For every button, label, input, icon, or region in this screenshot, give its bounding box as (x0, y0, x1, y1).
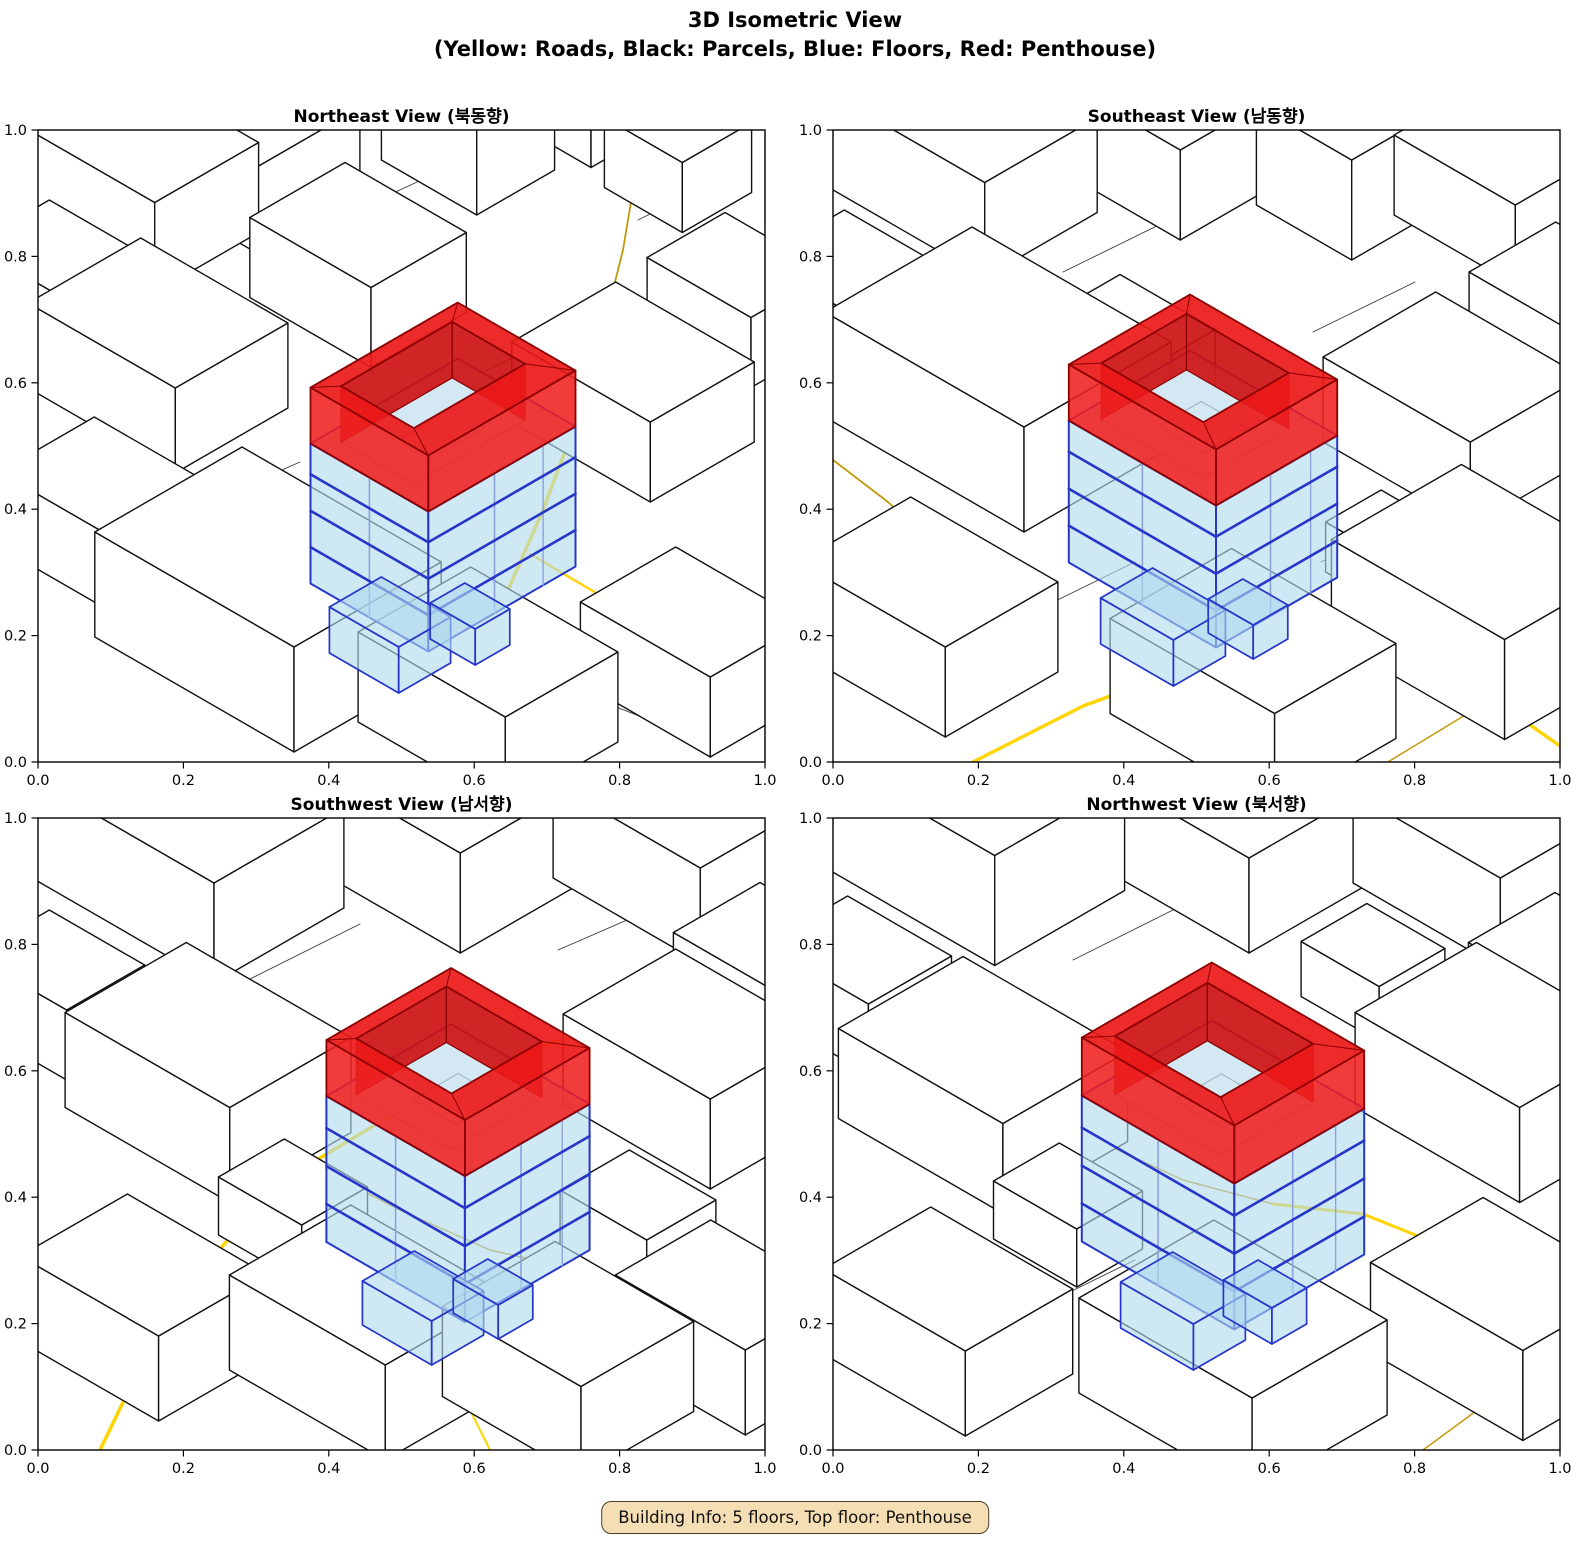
y-tick-label: 0.4 (799, 502, 822, 518)
y-tick-label: 0.6 (799, 376, 822, 392)
northwest-scene-canvas: 0.00.20.40.60.81.00.00.20.40.60.81.0 (833, 818, 1560, 1450)
x-tick-label: 0.4 (317, 773, 340, 789)
northeast-scene-canvas: 0.00.20.40.60.81.00.00.20.40.60.81.0 (38, 130, 765, 762)
y-tick-label: 0.2 (4, 629, 27, 645)
subplot-southeast: Southeast View (남동향) 0.00.20.40.60.81.00… (833, 130, 1560, 762)
y-tick-label: 0.2 (799, 1317, 822, 1333)
x-tick-label: 0.0 (821, 773, 844, 789)
x-tick-label: 1.0 (753, 773, 776, 789)
x-tick-label: 0.2 (172, 1461, 195, 1477)
x-tick-label: 0.2 (172, 773, 195, 789)
y-tick-label: 1.0 (4, 811, 27, 827)
x-tick-label: 0.8 (1403, 1461, 1426, 1477)
x-tick-label: 0.4 (1112, 773, 1135, 789)
y-tick-label: 1.0 (799, 811, 822, 827)
y-tick-label: 0.2 (4, 1317, 27, 1333)
y-tick-label: 0.4 (4, 502, 27, 518)
x-tick-label: 0.4 (1112, 1461, 1135, 1477)
subplot-northeast: Northeast View (북동향) 0.00.20.40.60.81.00… (38, 130, 765, 762)
y-tick-label: 0.4 (4, 1190, 27, 1206)
figure-title: 3D Isometric View (Yellow: Roads, Black:… (0, 6, 1590, 64)
figure-title-line2: (Yellow: Roads, Black: Parcels, Blue: Fl… (0, 35, 1590, 64)
y-tick-label: 0.0 (799, 755, 822, 771)
x-tick-label: 0.2 (967, 1461, 990, 1477)
building-info-badge: Building Info: 5 floors, Top floor: Pent… (601, 1501, 989, 1534)
y-tick-label: 1.0 (4, 123, 27, 139)
x-tick-label: 0.2 (967, 773, 990, 789)
x-tick-label: 1.0 (753, 1461, 776, 1477)
x-tick-label: 1.0 (1548, 773, 1571, 789)
y-tick-label: 0.0 (4, 1443, 27, 1459)
subplot-title-northwest: Northwest View (북서향) (793, 790, 1590, 815)
figure-title-line1: 3D Isometric View (0, 6, 1590, 35)
subplot-title-southeast: Southeast View (남동향) (793, 102, 1590, 127)
x-tick-label: 0.6 (463, 773, 486, 789)
x-tick-label: 0.8 (1403, 773, 1426, 789)
x-tick-label: 0.0 (26, 773, 49, 789)
subplot-southwest: Southwest View (남서향) 0.00.20.40.60.81.00… (38, 818, 765, 1450)
subplot-title-southwest: Southwest View (남서향) (0, 790, 805, 815)
y-tick-label: 0.8 (799, 937, 822, 953)
y-tick-label: 0.8 (799, 249, 822, 265)
x-tick-label: 0.6 (1258, 773, 1281, 789)
x-tick-label: 0.0 (821, 1461, 844, 1477)
x-tick-label: 1.0 (1548, 1461, 1571, 1477)
subplot-northwest: Northwest View (북서향) 0.00.20.40.60.81.00… (833, 818, 1560, 1450)
x-tick-label: 0.0 (26, 1461, 49, 1477)
x-tick-label: 0.6 (1258, 1461, 1281, 1477)
x-tick-label: 0.6 (463, 1461, 486, 1477)
x-tick-label: 0.4 (317, 1461, 340, 1477)
y-tick-label: 1.0 (799, 123, 822, 139)
y-tick-label: 0.8 (4, 937, 27, 953)
y-tick-label: 0.4 (799, 1190, 822, 1206)
southwest-scene-canvas: 0.00.20.40.60.81.00.00.20.40.60.81.0 (38, 818, 765, 1450)
y-tick-label: 0.0 (4, 755, 27, 771)
y-tick-label: 0.8 (4, 249, 27, 265)
y-tick-label: 0.6 (4, 1064, 27, 1080)
x-tick-label: 0.8 (608, 1461, 631, 1477)
y-tick-label: 0.6 (799, 1064, 822, 1080)
southeast-scene-canvas: 0.00.20.40.60.81.00.00.20.40.60.81.0 (833, 130, 1560, 762)
subplot-title-northeast: Northeast View (북동향) (0, 102, 805, 127)
y-tick-label: 0.6 (4, 376, 27, 392)
y-tick-label: 0.0 (799, 1443, 822, 1459)
x-tick-label: 0.8 (608, 773, 631, 789)
y-tick-label: 0.2 (799, 629, 822, 645)
